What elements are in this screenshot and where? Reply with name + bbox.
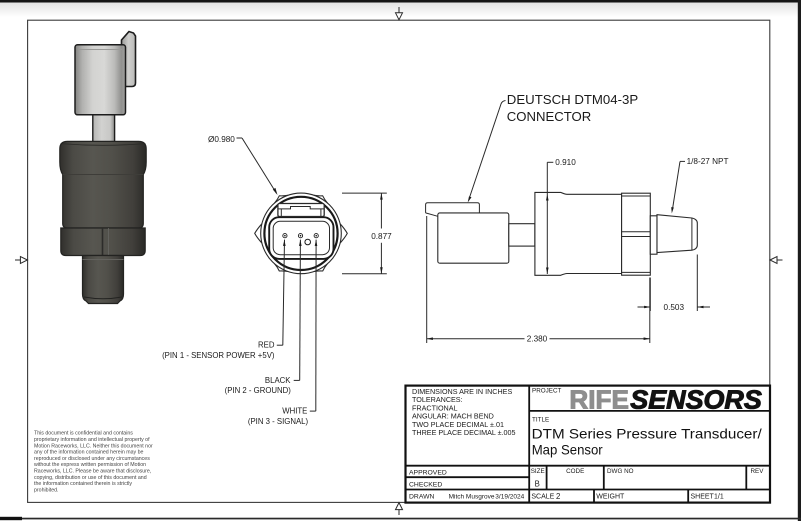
svg-text:1/8-27 NPT: 1/8-27 NPT — [687, 157, 729, 166]
svg-text:RIFE: RIFE — [569, 384, 629, 414]
svg-text:CODE: CODE — [566, 468, 584, 475]
svg-text:CHECKED: CHECKED — [409, 481, 442, 488]
svg-text:the information contained ther: the information contained therein is str… — [34, 481, 132, 487]
svg-text:APPROVED: APPROVED — [409, 469, 447, 476]
svg-text:B: B — [535, 480, 540, 489]
svg-text:THREE PLACE DECIMAL ±.005: THREE PLACE DECIMAL ±.005 — [412, 428, 516, 437]
svg-text:2.380: 2.380 — [527, 335, 548, 344]
svg-text:Mitch Musgrove: Mitch Musgrove — [449, 493, 495, 500]
svg-text:reproduced or disclosed under: reproduced or disclosed under any circum… — [34, 456, 150, 462]
svg-text:RED: RED — [258, 341, 275, 350]
svg-text:(PIN 1 - SENSOR POWER +5V): (PIN 1 - SENSOR POWER +5V) — [162, 351, 275, 360]
svg-text:0.503: 0.503 — [664, 303, 685, 312]
svg-text:DEUTSCH DTM04-3P: DEUTSCH DTM04-3P — [507, 92, 639, 107]
svg-text:This document is confidential: This document is confidential and contai… — [34, 431, 133, 437]
svg-text:prohibited.: prohibited. — [34, 487, 59, 493]
svg-text:CONNECTOR: CONNECTOR — [507, 109, 591, 124]
svg-text:DTM Series Pressure Transducer: DTM Series Pressure Transducer/ — [532, 425, 762, 441]
svg-text:WEIGHT: WEIGHT — [596, 494, 625, 501]
svg-text:SHEET: SHEET — [691, 494, 715, 501]
svg-text:0.877: 0.877 — [371, 232, 392, 241]
svg-text:SCALE: SCALE — [531, 494, 554, 501]
svg-text:Map Sensor: Map Sensor — [532, 441, 603, 457]
svg-text:without the express written pe: without the express written permission o… — [34, 462, 146, 468]
svg-text:TITLE: TITLE — [532, 417, 549, 424]
svg-text:Raceworks, LLC. Please be awar: Raceworks, LLC. Please be aware that dis… — [34, 469, 151, 475]
svg-text:REV: REV — [751, 468, 765, 475]
svg-text:0.910: 0.910 — [555, 158, 576, 167]
svg-text:Ø0.980: Ø0.980 — [208, 135, 235, 144]
svg-text:DRAWN: DRAWN — [409, 494, 435, 501]
svg-text:copying, distribution or use o: copying, distribution or use of this doc… — [34, 475, 147, 481]
svg-text:BLACK: BLACK — [265, 376, 291, 385]
svg-text:(PIN 2 - GROUND): (PIN 2 - GROUND) — [225, 386, 292, 395]
svg-text:SENSORS: SENSORS — [630, 384, 762, 414]
svg-text:PROJECT: PROJECT — [532, 387, 562, 394]
svg-text:1/1: 1/1 — [714, 494, 724, 501]
svg-text:WHITE: WHITE — [282, 407, 307, 416]
svg-text:proprietary information and in: proprietary information and intellectual… — [34, 437, 150, 443]
svg-text:2: 2 — [556, 492, 560, 501]
svg-text:any of the information contain: any of the information contained herein … — [34, 450, 144, 456]
svg-text:DWG NO: DWG NO — [607, 468, 634, 475]
svg-text:SIZE: SIZE — [531, 468, 545, 475]
svg-text:(PIN 3 - SIGNAL): (PIN 3 - SIGNAL) — [248, 417, 309, 426]
svg-text:3/19/2024: 3/19/2024 — [495, 493, 524, 500]
svg-text:Motion Raceworks, LLC. Neither: Motion Raceworks, LLC. Neither this docu… — [34, 443, 153, 449]
